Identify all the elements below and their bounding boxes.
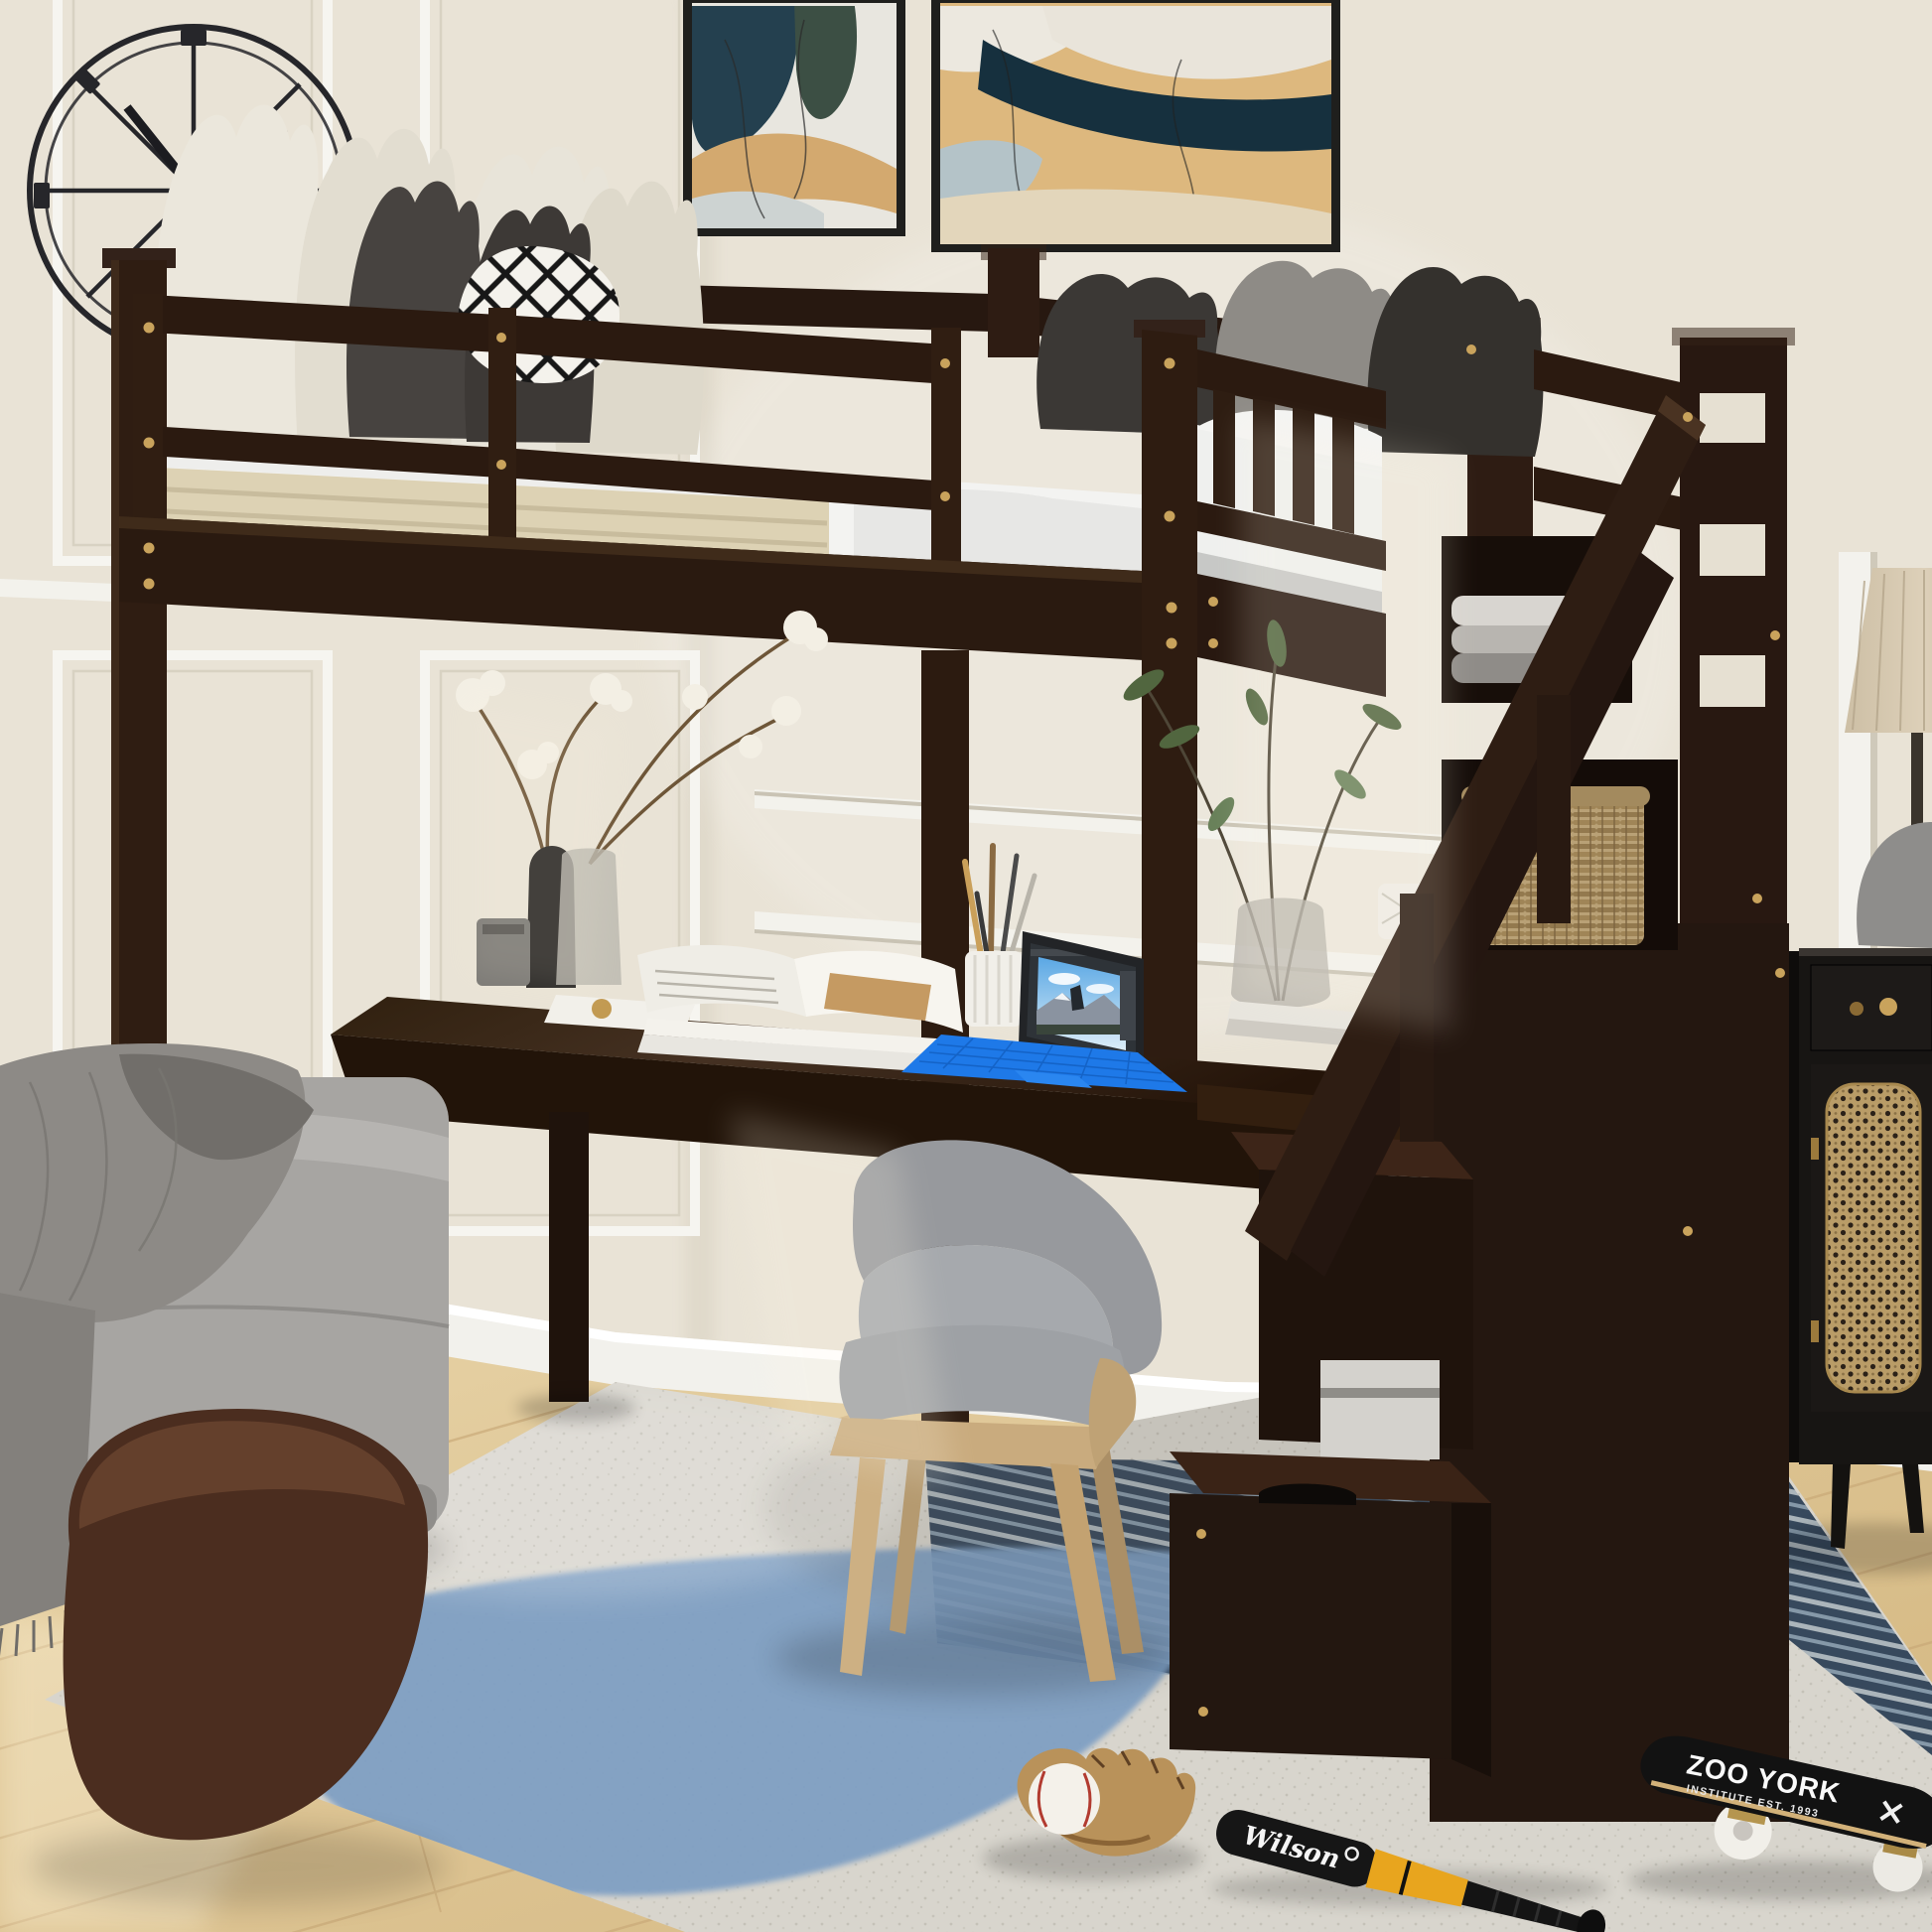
gold-trinket [592, 999, 612, 1019]
cabinet-top-edge [1799, 948, 1932, 956]
stair-panel-cap [1672, 328, 1795, 345]
drawer-keyplate [1850, 1002, 1863, 1016]
rear-mid-post [988, 248, 1039, 357]
desk-leg-shadow [516, 1394, 635, 1422]
wall-sun-patch-3 [467, 695, 616, 993]
desk-leg [549, 1112, 589, 1402]
cabinet-drawer [1811, 965, 1932, 1050]
scene-canvas: Wilson ZOO YORK INSTITUTE EST. 1993 [0, 0, 1932, 1932]
cane-panel [1827, 1084, 1920, 1392]
stair-baluster-2 [1537, 695, 1571, 923]
door-hinge-bottom [1811, 1320, 1819, 1342]
abstract-painting-right [931, 0, 1340, 252]
storage-box-lid-line [1320, 1388, 1440, 1398]
cabinet-side [1787, 951, 1801, 1462]
storage-box [1320, 1360, 1440, 1459]
lamp-stem [1911, 733, 1923, 832]
drawer-knob [1879, 998, 1897, 1016]
front-right-post [1142, 330, 1197, 1110]
abstract-painting-left [683, 0, 905, 236]
stair-panel-slots [1700, 393, 1765, 707]
bedroom-scene: Wilson ZOO YORK INSTITUTE EST. 1993 [0, 0, 1932, 1932]
wall-sun-patch-1 [1241, 417, 1451, 1033]
storage-drawer-step [1170, 1493, 1451, 1759]
door-hinge-top [1811, 1138, 1819, 1160]
drawer-step-side [1451, 1503, 1491, 1777]
left-post-highlight [111, 260, 119, 1104]
brown-pillow-shadow [30, 1827, 447, 1906]
